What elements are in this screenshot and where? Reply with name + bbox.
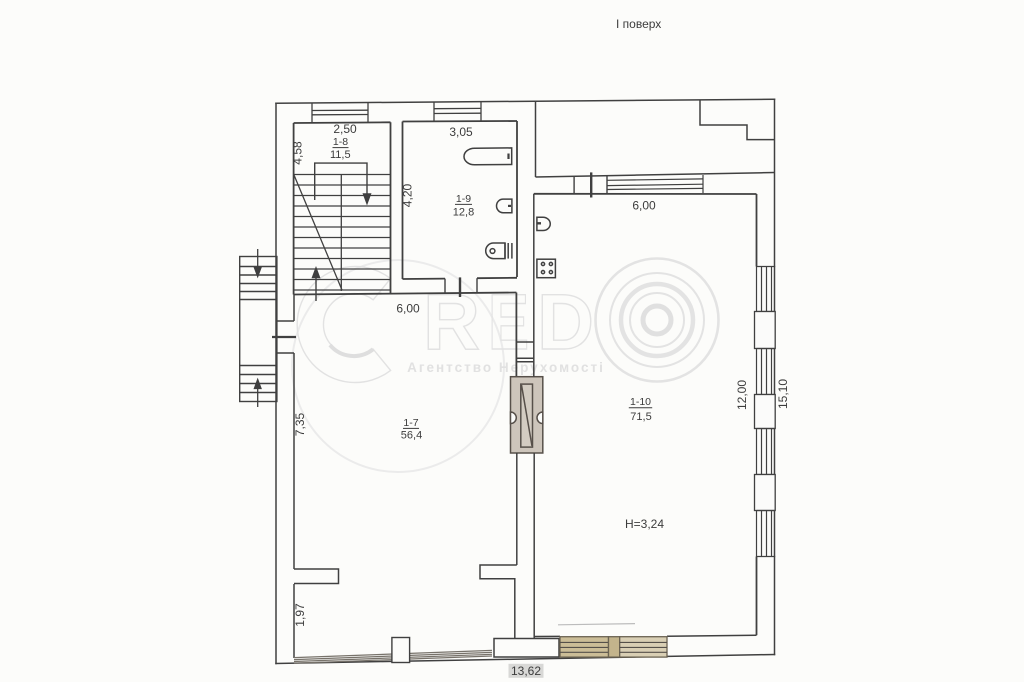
svg-text:4,20: 4,20 xyxy=(401,183,415,207)
svg-text:H=3,24: H=3,24 xyxy=(625,517,664,531)
svg-text:13,62: 13,62 xyxy=(511,664,541,678)
svg-text:71,5: 71,5 xyxy=(630,411,651,423)
svg-text:56,4: 56,4 xyxy=(401,430,422,442)
svg-text:D: D xyxy=(537,277,594,366)
svg-text:11,5: 11,5 xyxy=(330,149,351,161)
svg-text:12,8: 12,8 xyxy=(453,207,474,219)
svg-text:1-8: 1-8 xyxy=(333,136,348,148)
svg-text:1-9: 1-9 xyxy=(456,193,471,205)
svg-text:7,35: 7,35 xyxy=(293,412,307,436)
svg-text:6,00: 6,00 xyxy=(632,199,656,213)
svg-text:2,50: 2,50 xyxy=(333,122,357,136)
svg-text:6,00: 6,00 xyxy=(396,302,420,316)
svg-text:1-10: 1-10 xyxy=(630,396,651,408)
svg-text:Агентство Нерухомості: Агентство Нерухомості xyxy=(407,360,605,375)
svg-text:3,05: 3,05 xyxy=(449,125,473,139)
svg-text:1-7: 1-7 xyxy=(403,417,418,429)
svg-text:4,58: 4,58 xyxy=(291,141,305,165)
svg-text:І поверх: І поверх xyxy=(616,17,661,31)
svg-text:12,00: 12,00 xyxy=(735,380,749,410)
svg-text:1,97: 1,97 xyxy=(293,603,307,627)
svg-text:R: R xyxy=(423,277,480,366)
svg-text:15,10: 15,10 xyxy=(776,379,790,409)
